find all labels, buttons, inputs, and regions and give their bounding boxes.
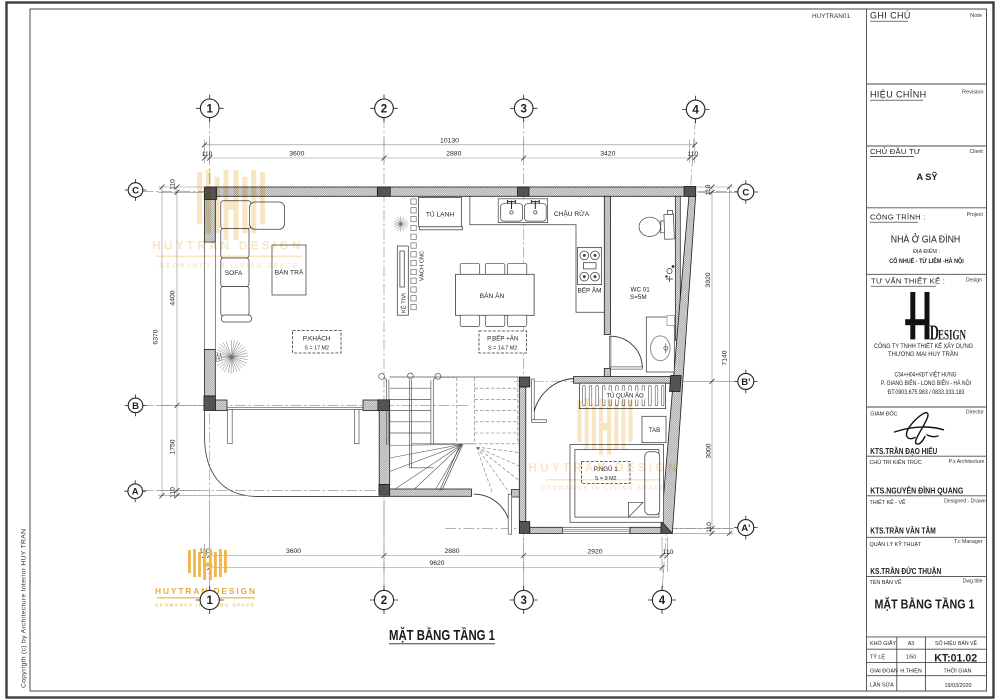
svg-text:THỜI GIAN: THỜI GIAN bbox=[944, 667, 972, 674]
svg-text:3: 3 bbox=[520, 595, 526, 607]
svg-text:KTS.TRẦN VĂN TÂM: KTS.TRẦN VĂN TÂM bbox=[870, 525, 936, 535]
svg-text:TÊN BẢN VẼ: TÊN BẢN VẼ bbox=[870, 578, 902, 586]
svg-text:2: 2 bbox=[381, 595, 387, 607]
svg-text:Revision: Revision bbox=[962, 90, 983, 96]
svg-text:1: 1 bbox=[206, 595, 213, 607]
svg-text:Copyrigth (c) by Architecture: Copyrigth (c) by Architecture Interior H… bbox=[21, 529, 28, 688]
svg-text:A3: A3 bbox=[908, 641, 915, 647]
svg-text:HUYTRAN DESIGN: HUYTRAN DESIGN bbox=[528, 463, 679, 475]
svg-text:B': B' bbox=[741, 377, 750, 388]
svg-text:GEOMANCY IN LIVING SPACE: GEOMANCY IN LIVING SPACE bbox=[541, 486, 666, 492]
svg-text:WC 01: WC 01 bbox=[631, 287, 651, 294]
svg-text:TỦ LẠNH: TỦ LẠNH bbox=[426, 210, 454, 219]
svg-text:MẶT BẰNG TẦNG 1: MẶT BẰNG TẦNG 1 bbox=[875, 597, 975, 612]
svg-text:4400: 4400 bbox=[169, 290, 176, 305]
svg-text:CHỦ ĐẦU TƯ: CHỦ ĐẦU TƯ bbox=[870, 146, 921, 156]
svg-text:C: C bbox=[132, 185, 139, 196]
svg-text:HIỆU CHỈNH: HIỆU CHỈNH bbox=[870, 89, 927, 100]
svg-text:110: 110 bbox=[663, 549, 674, 556]
svg-text:110: 110 bbox=[169, 179, 176, 190]
svg-text:Note: Note bbox=[970, 13, 982, 19]
svg-text:TỶ LỆ: TỶ LỆ bbox=[870, 652, 885, 660]
svg-text:ĐT.0903.675.983 / 0833.333.183: ĐT.0903.675.983 / 0833.333.183 bbox=[888, 390, 966, 396]
svg-text:TƯ VẤN THIẾT KẾ :: TƯ VẤN THIẾT KẾ : bbox=[871, 276, 945, 286]
svg-text:Dwg.title: Dwg.title bbox=[963, 579, 983, 585]
svg-text:CHẬU RỬA: CHẬU RỬA bbox=[554, 209, 590, 218]
svg-text:GIAI ĐOẠN: GIAI ĐOẠN bbox=[870, 668, 898, 674]
svg-text:110: 110 bbox=[705, 184, 712, 195]
svg-text:P.s Architecture: P.s Architecture bbox=[949, 459, 985, 465]
svg-text:10130: 10130 bbox=[440, 137, 459, 144]
svg-text:B: B bbox=[132, 401, 139, 412]
svg-text:TAB: TAB bbox=[649, 427, 661, 434]
svg-text:110: 110 bbox=[202, 151, 213, 158]
svg-text:1750: 1750 bbox=[169, 439, 176, 454]
svg-text:Designed - Drawn: Designed - Drawn bbox=[944, 499, 986, 505]
svg-text:P. GIANG BIÊN - LONG BIÊN - HÀ: P. GIANG BIÊN - LONG BIÊN - HÀ NỘI bbox=[881, 379, 971, 387]
svg-text:VÁCH CNC: VÁCH CNC bbox=[419, 251, 426, 281]
svg-text:QUẢN LÝ KỸ THUẬT: QUẢN LÝ KỸ THUẬT bbox=[870, 541, 922, 548]
svg-text:Design: Design bbox=[966, 278, 982, 284]
svg-text:KS.TRẦN ĐỨC THUẬN: KS.TRẦN ĐỨC THUẬN bbox=[870, 566, 941, 576]
svg-text:SOFA: SOFA bbox=[225, 270, 243, 277]
svg-text:S=5M: S=5M bbox=[630, 294, 647, 301]
svg-text:3920: 3920 bbox=[705, 272, 712, 287]
svg-text:110: 110 bbox=[169, 487, 176, 498]
svg-text:NHÀ Ở GIA ĐÌNH: NHÀ Ở GIA ĐÌNH bbox=[891, 233, 961, 246]
svg-text:4: 4 bbox=[692, 104, 699, 116]
svg-text:6370: 6370 bbox=[153, 329, 160, 344]
svg-text:P.BẾP +ĂN: P.BẾP +ĂN bbox=[487, 336, 518, 343]
svg-text:KT:01.02: KT:01.02 bbox=[934, 653, 977, 665]
svg-text:Client: Client bbox=[970, 149, 984, 155]
svg-text:H.THIỆN: H.THIỆN bbox=[900, 666, 922, 674]
svg-text:A SỸ: A SỸ bbox=[916, 172, 937, 182]
svg-text:3000: 3000 bbox=[706, 443, 713, 458]
svg-text:3600: 3600 bbox=[286, 548, 301, 555]
svg-text:Director: Director bbox=[966, 410, 984, 416]
svg-text:3420: 3420 bbox=[600, 151, 615, 158]
svg-text:9620: 9620 bbox=[429, 560, 444, 567]
svg-text:KTS.NGUYỄN ĐÌNH QUANG: KTS.NGUYỄN ĐÌNH QUANG bbox=[870, 486, 963, 495]
svg-text:CHỦ TRÌ KIẾN TRÚC: CHỦ TRÌ KIẾN TRÚC bbox=[870, 459, 922, 466]
svg-text:KỆ TIVI: KỆ TIVI bbox=[399, 293, 407, 313]
svg-text:19/03/2020: 19/03/2020 bbox=[945, 683, 972, 689]
svg-text:2: 2 bbox=[381, 103, 387, 115]
svg-text:1/50: 1/50 bbox=[906, 654, 917, 660]
svg-text:4: 4 bbox=[659, 595, 666, 607]
svg-text:CỔ NHUẾ - TỪ LIÊM -HÀ NỘI: CỔ NHUẾ - TỪ LIÊM -HÀ NỘI bbox=[889, 257, 964, 265]
svg-text:110: 110 bbox=[687, 151, 698, 158]
svg-text:Project: Project bbox=[967, 212, 984, 218]
svg-text:GHI CHÚ: GHI CHÚ bbox=[870, 11, 911, 21]
svg-text:A: A bbox=[132, 487, 139, 498]
svg-text:CÔNG TRÌNH :: CÔNG TRÌNH : bbox=[870, 213, 926, 222]
svg-text:S = 17 M2: S = 17 M2 bbox=[304, 346, 329, 352]
svg-text:HUYTRAN DESIGN: HUYTRAN DESIGN bbox=[152, 241, 303, 253]
svg-text:THIẾT KẾ - VẼ: THIẾT KẾ - VẼ bbox=[870, 499, 907, 506]
svg-text:110: 110 bbox=[706, 522, 713, 533]
svg-text:2880: 2880 bbox=[444, 548, 459, 555]
svg-text:C: C bbox=[742, 188, 749, 199]
svg-text:KHỔ GIẤY: KHỔ GIẤY bbox=[870, 640, 896, 647]
svg-text:A': A' bbox=[741, 523, 750, 534]
svg-text:2880: 2880 bbox=[446, 151, 461, 158]
svg-text:T.c Manager: T.c Manager bbox=[954, 539, 983, 545]
svg-text:GIÁM ĐỐC: GIÁM ĐỐC bbox=[870, 411, 897, 418]
svg-text:SỐ HIỆU BẢN VẼ: SỐ HIỆU BẢN VẼ bbox=[935, 639, 977, 647]
svg-text:ĐỊA ĐIỂM :: ĐỊA ĐIỂM : bbox=[913, 248, 940, 255]
svg-text:KTS.TRẦN ĐẠO HIẾU: KTS.TRẦN ĐẠO HIẾU bbox=[870, 446, 937, 456]
svg-text:MẶT BẰNG TẦNG 1: MẶT BẰNG TẦNG 1 bbox=[389, 626, 495, 644]
svg-text:3600: 3600 bbox=[289, 151, 304, 158]
svg-text:2920: 2920 bbox=[587, 549, 602, 556]
svg-text:P.KHÁCH: P.KHÁCH bbox=[303, 334, 331, 343]
svg-text:3: 3 bbox=[520, 103, 526, 115]
svg-text:BÀN ĂN: BÀN ĂN bbox=[480, 291, 505, 300]
svg-text:1: 1 bbox=[206, 103, 213, 115]
svg-text:C34+H04+KĐT VIỆT HƯNG: C34+H04+KĐT VIỆT HƯNG bbox=[895, 370, 957, 378]
svg-text:HUYTRAN01: HUYTRAN01 bbox=[812, 13, 850, 20]
svg-text:GEOMANCY IN LIVING SPACE: GEOMANCY IN LIVING SPACE bbox=[159, 263, 299, 270]
svg-text:7140: 7140 bbox=[721, 350, 728, 365]
svg-text:LẦN SỬA: LẦN SỬA bbox=[870, 681, 894, 688]
svg-text:S = 14.7 M2: S = 14.7 M2 bbox=[488, 346, 517, 352]
